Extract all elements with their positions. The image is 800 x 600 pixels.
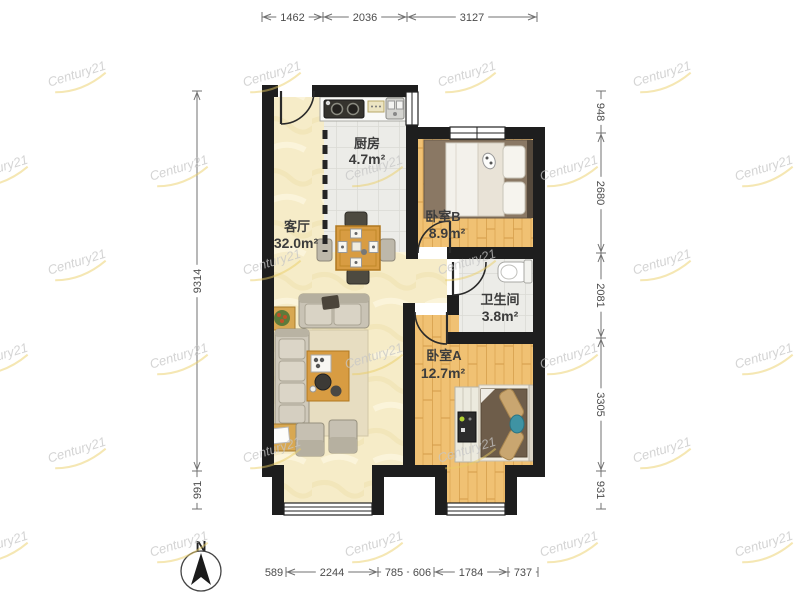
dim-label: 1784 <box>459 567 483 579</box>
living-room-name: 客厅 <box>284 219 310 234</box>
dim-label: 589 <box>265 567 283 579</box>
pillow <box>503 182 525 214</box>
bathroom-name: 卫生间 <box>480 292 519 307</box>
dim-group-top: 146220363127 <box>262 10 537 24</box>
watermark: Century21 <box>538 340 602 379</box>
dim-label: 991 <box>192 481 204 499</box>
kitchen-counter <box>320 97 406 121</box>
bedroom-a-area: 12.7m² <box>421 365 466 381</box>
watermark: Century21 <box>436 58 500 97</box>
kitchen-name: 厨房 <box>354 136 380 151</box>
watermark: Century21 <box>538 152 602 191</box>
dim-label: 948 <box>594 103 606 121</box>
dim-label: 2036 <box>353 12 377 24</box>
living-bay-window <box>284 503 372 515</box>
watermark: Century21 <box>46 246 110 285</box>
watermark-text: Century21 <box>148 152 210 184</box>
watermark-text: Century21 <box>436 58 498 90</box>
dining-chair <box>347 269 369 284</box>
watermark-text: Century21 <box>733 152 795 184</box>
dim-label: 2081 <box>594 283 606 307</box>
dining-chair <box>380 239 395 261</box>
watermark: Century21 <box>148 340 212 379</box>
watermark: Century21 <box>0 528 32 567</box>
dim-group-bottom: 58922447856061784737 <box>261 565 538 579</box>
watermark-text: Century21 <box>631 246 693 278</box>
chaise-sofa <box>275 329 309 428</box>
watermark: Century21 <box>343 528 407 567</box>
dim-label: 1462 <box>280 12 304 24</box>
dim-label: 2244 <box>320 567 344 579</box>
watermark-text: Century21 <box>46 246 108 278</box>
watermark: Century21 <box>538 528 602 567</box>
bedroom-a-bay-window <box>447 503 505 515</box>
kitchen-window <box>406 92 418 125</box>
watermark: Century21 <box>148 152 212 191</box>
watermark: Century21 <box>733 340 797 379</box>
watermark: Century21 <box>46 58 110 97</box>
watermark: Century21 <box>0 340 32 379</box>
watermark-text: Century21 <box>733 340 795 372</box>
watermark: Century21 <box>733 152 797 191</box>
watermark: Century21 <box>631 58 695 97</box>
watermark-text: Century21 <box>631 58 693 90</box>
dim-label: 737 <box>514 567 532 579</box>
dim-label: 606 <box>413 567 431 579</box>
watermark: Century21 <box>631 246 695 285</box>
compass-needle-icon <box>191 553 211 585</box>
watermark-text: Century21 <box>538 528 600 560</box>
loveseat <box>299 294 369 328</box>
watermark-text: Century21 <box>538 340 600 372</box>
stove <box>324 100 364 118</box>
watermark-text: Century21 <box>46 434 108 466</box>
watermark-text: Century21 <box>343 528 405 560</box>
bathroom-area: 3.8m² <box>482 308 519 324</box>
dim-label: 3127 <box>460 12 484 24</box>
bedroom-a-name: 卧室A <box>426 348 462 363</box>
watermark: Century21 <box>631 434 695 473</box>
headboard <box>527 140 533 218</box>
bedroom-b-name: 卧室B <box>425 209 460 224</box>
floorplan-svg: 厨房 4.7m² 客厅 32.0m² 卧室B 8.9m² 卫生间 3.8m² 卧… <box>0 0 800 600</box>
bedroom-b-window <box>450 127 505 139</box>
watermark: Century21 <box>46 434 110 473</box>
watermark: Century21 <box>733 528 797 567</box>
toilet <box>498 260 532 283</box>
dim-group-right: 948268020813305931 <box>594 91 608 509</box>
dim-label: 2680 <box>594 181 606 205</box>
watermark-text: Century21 <box>46 58 108 90</box>
dim-label: 785 <box>385 567 403 579</box>
bedroom-b-area: 8.9m² <box>429 225 466 241</box>
dining-chair <box>345 212 367 227</box>
bedroom-a-bay-floor <box>447 465 505 503</box>
watermark-text: Century21 <box>241 58 303 90</box>
bedroom-b-bed <box>424 140 533 218</box>
pillow <box>503 146 525 178</box>
counter-panel <box>368 101 384 112</box>
dim-label: 9314 <box>192 269 204 293</box>
watermark: Century21 <box>0 152 32 191</box>
watermark-text: Century21 <box>148 340 210 372</box>
watermark-text: Century21 <box>538 152 600 184</box>
living-bay-floor <box>284 465 372 503</box>
watermark-text: Century21 <box>733 528 795 560</box>
dim-label: 3305 <box>594 392 606 416</box>
floorplan-image: 厨房 4.7m² 客厅 32.0m² 卧室B 8.9m² 卫生间 3.8m² 卧… <box>0 0 800 600</box>
sink <box>386 98 404 119</box>
watermark-text: Century21 <box>631 434 693 466</box>
dim-label: 931 <box>594 481 606 499</box>
